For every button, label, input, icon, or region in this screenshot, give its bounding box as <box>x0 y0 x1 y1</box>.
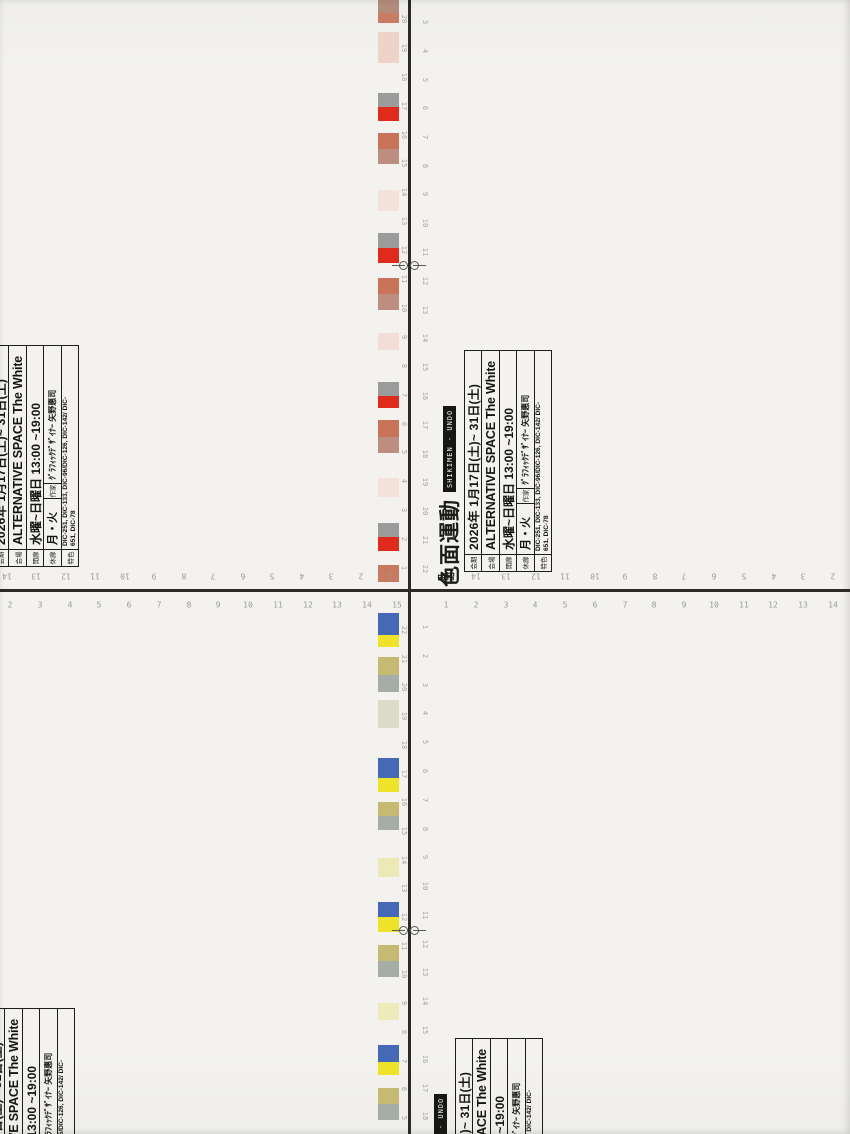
table-row-closed-artist: 休廊 月・火 作家 ｸﾞﾗﾌｨｯｸﾃﾞｻﾞｲﾅｰ 矢野惠司 <box>43 346 60 566</box>
ruler-number: 1 <box>444 601 449 610</box>
color-bar-number: 9 <box>400 1001 408 1005</box>
color-patch <box>378 675 399 692</box>
color-patch <box>378 802 399 816</box>
color-patch <box>378 700 399 728</box>
ruler-number: 9 <box>216 601 221 610</box>
ruler-number: 12 <box>421 277 429 285</box>
closed-value: 月・火 <box>517 504 533 554</box>
ruler-number: 2 <box>831 572 836 581</box>
ruler-number: 5 <box>97 601 102 610</box>
ruler-number: 9 <box>421 855 429 859</box>
color-patch <box>378 190 399 211</box>
artist-label: 作家 <box>44 483 60 499</box>
exhibition-info-table: 会期 2026年 1月17日(土)~ 31日(土) 会場 ALTERNATIVE… <box>0 345 79 567</box>
color-bar-number: 16 <box>400 798 408 806</box>
color-bar-number: 1 <box>400 566 408 570</box>
ruler-number: 4 <box>300 572 305 581</box>
ruler-number: 11 <box>739 601 749 610</box>
ruler-number: 4 <box>68 601 73 610</box>
ruler-number: 3 <box>421 683 429 687</box>
ruler-number: 1 <box>388 572 393 581</box>
table-row-venue: 会場 ALTERNATIVE SPACE The White <box>481 351 498 571</box>
exhibition-title: 色面運動 <box>434 499 464 587</box>
ruler-number: 2 <box>359 572 364 581</box>
ruler-number: 14 <box>828 601 838 610</box>
venue-value: ALTERNATIVE SPACE The White <box>484 361 498 554</box>
color-bar-number: 10 <box>400 304 408 312</box>
exhibition-titlebar: 色面運動 SHIKIMEN - UNDO <box>428 1038 452 1134</box>
ruler-number: 7 <box>421 135 429 139</box>
ruler-number: 11 <box>421 248 429 256</box>
artist-value: ｸﾞﾗﾌｨｯｸﾃﾞｻﾞｲﾅｰ 矢野惠司 <box>520 395 531 488</box>
venue-value: ALTERNATIVE SPACE The White <box>11 356 25 549</box>
table-row-closed-artist: 休廊 月・火 作家 ｸﾞﾗﾌｨｯｸﾃﾞｻﾞｲﾅｰ 矢野惠司 <box>39 1009 56 1134</box>
ruler-number: 6 <box>241 572 246 581</box>
table-row-closed-artist: 休廊 月・火 作家 ｸﾞﾗﾌｨｯｸﾃﾞｻﾞｲﾅｰ 矢野惠司 <box>516 351 533 571</box>
color-bar-number: 20 <box>400 15 408 23</box>
exhibition-info-block: 色面運動 SHIKIMEN - UNDO 会期 2026年 1月17日(土)~ … <box>0 345 80 582</box>
table-row-period: 会期 2026年 1月17日(土)~ 31日(土) <box>465 351 481 571</box>
color-patch <box>378 1088 399 1104</box>
ruler-number: 14 <box>421 997 429 1005</box>
color-bar-number: 12 <box>400 913 408 921</box>
ruler-number: 9 <box>682 601 687 610</box>
ruler-number: 18 <box>421 450 429 458</box>
hours-label: 開廊 <box>27 549 43 566</box>
color-patch <box>378 396 399 408</box>
ruler-number: 9 <box>623 572 628 581</box>
spot-colors-value: DIC-251, DIC-133, DIC-96/DIC-126, DIC-14… <box>535 396 551 554</box>
color-bar-number: 3 <box>400 508 408 512</box>
ruler-number: 14 <box>362 601 372 610</box>
table-row-hours: 開廊 水曜~日曜日 13:00 ~19:00 <box>22 1009 39 1134</box>
ruler-number: 3 <box>801 572 806 581</box>
ruler-number: 8 <box>421 164 429 168</box>
ruler-number: 8 <box>421 827 429 831</box>
ruler-number: 13 <box>421 968 429 976</box>
ruler-number: 6 <box>712 572 717 581</box>
venue-value: ALTERNATIVE SPACE The White <box>7 1019 21 1134</box>
ruler-number: 6 <box>127 601 132 610</box>
ruler-number: 10 <box>243 601 253 610</box>
table-row-venue: 会場 ALTERNATIVE SPACE The White <box>8 346 25 566</box>
ruler-number: 5 <box>421 740 429 744</box>
artist-value: ｸﾞﾗﾌｨｯｸﾃﾞｻﾞｲﾅｰ 矢野惠司 <box>47 390 58 483</box>
color-bar-number: 9 <box>400 335 408 339</box>
hours-value: 水曜~日曜日 13:00 ~19:00 <box>491 1096 508 1134</box>
ruler-number: 15 <box>392 601 402 610</box>
color-bar-number: 10 <box>400 970 408 978</box>
color-patch <box>378 1045 399 1062</box>
color-patch <box>378 758 399 778</box>
period-value: 2026年 1月17日(土)~ 31日(土) <box>456 1072 473 1134</box>
color-bar-number: 8 <box>400 1030 408 1034</box>
color-bar-number: 5 <box>400 450 408 454</box>
exhibition-info-block: 色面運動 SHIKIMEN - UNDO 会期 2026年 1月17日(土)~ … <box>0 1008 76 1134</box>
ruler-number: 11 <box>421 911 429 919</box>
ruler-number: 10 <box>120 572 130 581</box>
ruler-number: 13 <box>421 306 429 314</box>
ruler-number: 7 <box>157 601 162 610</box>
ruler-number: 13 <box>332 601 342 610</box>
color-bar-number: 22 <box>400 626 408 634</box>
ruler-number: 8 <box>652 601 657 610</box>
table-row-hours: 開廊 水曜~日曜日 13:00 ~19:00 <box>499 351 516 571</box>
registration-mark <box>392 260 426 270</box>
ruler-number: 1 <box>421 625 429 629</box>
exhibition-title-romaji-badge: SHIKIMEN - UNDO <box>443 406 456 492</box>
table-row-venue: 会場 ALTERNATIVE SPACE The White <box>4 1009 21 1134</box>
color-patch <box>378 478 399 497</box>
horizontal-fold-line <box>0 589 850 592</box>
color-bar-number: 20 <box>400 683 408 691</box>
color-patch <box>378 523 399 537</box>
color-patch <box>378 778 399 792</box>
color-bar-number: 18 <box>400 73 408 81</box>
color-bar-number: 5 <box>400 1116 408 1120</box>
ruler-number: 12 <box>421 940 429 948</box>
color-bar-number: 15 <box>400 159 408 167</box>
ruler-number: 6 <box>593 601 598 610</box>
color-bar-number: 17 <box>400 102 408 110</box>
ruler-number: 2 <box>8 601 13 610</box>
color-bar-number: 7 <box>400 1059 408 1063</box>
ruler-number: 20 <box>421 507 429 515</box>
color-bar-number: 7 <box>400 393 408 397</box>
color-patch <box>378 945 399 961</box>
color-bar-number: 13 <box>400 884 408 892</box>
color-bar-number: 19 <box>400 44 408 52</box>
table-row-closed-artist: 休廊 月・火 作家 ｸﾞﾗﾌｨｯｸﾃﾞｻﾞｲﾅｰ 矢野惠司 <box>507 1039 524 1134</box>
color-bar-number: 14 <box>400 188 408 196</box>
ruler-number: 15 <box>421 1026 429 1034</box>
color-patch <box>378 382 399 396</box>
ruler-number: 13 <box>798 601 808 610</box>
ruler-number: 10 <box>421 882 429 890</box>
exhibition-title-romaji-badge: SHIKIMEN - UNDO <box>434 1094 447 1134</box>
color-bar-number: 6 <box>400 1087 408 1091</box>
color-bar-number: 6 <box>400 422 408 426</box>
ruler-number: 5 <box>270 572 275 581</box>
ruler-number: 3 <box>421 20 429 24</box>
venue-value: ALTERNATIVE SPACE The White <box>475 1049 489 1134</box>
table-row-spot-colors: 特色 DIC-251, DIC-133, DIC-96/DIC-126, DIC… <box>61 346 78 566</box>
ruler-number: 2 <box>421 654 429 658</box>
color-patch <box>378 858 399 877</box>
ruler-number: 21 <box>421 536 429 544</box>
color-patch <box>378 1104 399 1120</box>
table-row-hours: 開廊 水曜~日曜日 13:00 ~19:00 <box>490 1039 507 1134</box>
closed-label: 休廊 <box>44 549 60 566</box>
table-row-spot-colors: 特色 DIC-251, DIC-133, DIC-96/DIC-126, DIC… <box>57 1009 74 1134</box>
ruler-number: 4 <box>421 49 429 53</box>
ruler-number: 14 <box>421 334 429 342</box>
color-patch <box>378 93 399 107</box>
color-patch <box>378 537 399 551</box>
color-patch <box>378 1003 399 1020</box>
color-patch <box>378 294 399 310</box>
closed-value: 月・火 <box>44 499 60 549</box>
table-row-period: 会期 2026年 1月17日(土)~ 31日(土) <box>456 1039 472 1134</box>
hours-value: 水曜~日曜日 13:00 ~19:00 <box>23 1066 40 1134</box>
color-patch <box>378 902 399 917</box>
color-patch <box>378 657 399 675</box>
color-bar-number: 2 <box>400 537 408 541</box>
color-patch <box>378 13 399 23</box>
ruler-number: 10 <box>709 601 719 610</box>
scanned-proof-sheet: 2019181716151413121110987654321222120191… <box>0 0 850 1134</box>
color-bar-number: 21 <box>400 655 408 663</box>
color-bar-number: 4 <box>400 479 408 483</box>
artist-label: 作家 <box>517 488 533 504</box>
ruler-number: 12 <box>768 601 778 610</box>
exhibition-info-block: 色面運動 SHIKIMEN - UNDO 会期 2026年 1月17日(土)~ … <box>437 350 553 587</box>
ruler-number: 4 <box>772 572 777 581</box>
ruler-number: 2 <box>474 601 479 610</box>
hours-value: 水曜~日曜日 13:00 ~19:00 <box>27 403 44 549</box>
table-row-venue: 会場 ALTERNATIVE SPACE The White <box>472 1039 489 1134</box>
artist-value: ｸﾞﾗﾌｨｯｸﾃﾞｻﾞｲﾅｰ 矢野惠司 <box>511 1083 522 1134</box>
ruler-number: 7 <box>682 572 687 581</box>
color-patch <box>378 816 399 830</box>
color-bar-number: 12 <box>400 246 408 254</box>
exhibition-titlebar: 色面運動 SHIKIMEN - UNDO <box>437 350 461 587</box>
ruler-number: 7 <box>211 572 216 581</box>
spot-colors-value: DIC-251, DIC-133, DIC-96/DIC-126, DIC-14… <box>526 1084 542 1134</box>
table-row-spot-colors: 特色 DIC-251, DIC-133, DIC-96/DIC-126, DIC… <box>525 1039 542 1134</box>
color-bar-number: 11 <box>400 275 408 283</box>
ruler-number: 3 <box>38 601 43 610</box>
ruler-number: 5 <box>742 572 747 581</box>
spot-colors-label: 特色 <box>535 554 551 571</box>
color-patch <box>378 1062 399 1075</box>
color-bar-number: 18 <box>400 741 408 749</box>
color-bar-number: 15 <box>400 827 408 835</box>
exhibition-info-table: 会期 2026年 1月17日(土)~ 31日(土) 会場 ALTERNATIVE… <box>455 1038 543 1134</box>
hours-label: 開廊 <box>500 554 516 571</box>
ruler-number: 9 <box>421 192 429 196</box>
color-patch <box>378 32 399 63</box>
table-row-spot-colors: 特色 DIC-251, DIC-133, DIC-96/DIC-126, DIC… <box>534 351 551 571</box>
exhibition-info-table: 会期 2026年 1月17日(土)~ 31日(土) 会場 ALTERNATIVE… <box>464 350 552 572</box>
artist-value: ｸﾞﾗﾌｨｯｸﾃﾞｻﾞｲﾅｰ 矢野惠司 <box>43 1053 54 1134</box>
ruler-number: 10 <box>590 572 600 581</box>
spot-colors-label: 特色 <box>62 549 78 566</box>
color-patch <box>378 278 399 294</box>
ruler-number: 7 <box>421 798 429 802</box>
ruler-number: 17 <box>421 421 429 429</box>
ruler-number: 8 <box>182 572 187 581</box>
ruler-number: 3 <box>504 601 509 610</box>
registration-mark <box>392 925 426 935</box>
ruler-number: 6 <box>421 769 429 773</box>
color-patch <box>378 149 399 164</box>
venue-label: 会場 <box>482 554 498 571</box>
ruler-number: 4 <box>421 711 429 715</box>
color-patch <box>378 333 399 350</box>
ruler-number: 9 <box>152 572 157 581</box>
color-bar-number: 13 <box>400 217 408 225</box>
color-patch <box>378 613 399 635</box>
ruler-number: 10 <box>421 219 429 227</box>
color-bar-number: 8 <box>400 364 408 368</box>
vertical-fold-line <box>408 0 411 1134</box>
ruler-number: 11 <box>90 572 100 581</box>
venue-label: 会場 <box>9 549 25 566</box>
ruler-number: 8 <box>187 601 192 610</box>
color-patch <box>378 437 399 453</box>
ruler-number: 5 <box>421 78 429 82</box>
table-row-hours: 開廊 水曜~日曜日 13:00 ~19:00 <box>26 346 43 566</box>
ruler-number: 5 <box>563 601 568 610</box>
table-row-period: 会期 2026年 1月17日(土)~ 31日(土) <box>0 346 8 566</box>
period-value: 2026年 1月17日(土)~ 31日(土) <box>0 379 9 549</box>
ruler-number: 22 <box>421 565 429 573</box>
ruler-number: 11 <box>273 601 283 610</box>
ruler-number: 11 <box>560 572 570 581</box>
period-label: 会期 <box>0 549 8 566</box>
ruler-number: 19 <box>421 478 429 486</box>
period-value: 2026年 1月17日(土)~ 31日(土) <box>465 384 482 554</box>
ruler-number: 12 <box>303 601 313 610</box>
hours-value: 水曜~日曜日 13:00 ~19:00 <box>500 408 517 554</box>
color-patch <box>378 233 399 248</box>
color-bar-number: 16 <box>400 131 408 139</box>
period-label: 会期 <box>465 554 481 571</box>
color-bar-number: 17 <box>400 770 408 778</box>
color-patch <box>378 107 399 121</box>
exhibition-info-table: 会期 2026年 1月17日(土)~ 31日(土) 会場 ALTERNATIVE… <box>0 1008 75 1134</box>
ruler-number: 8 <box>653 572 658 581</box>
ruler-number: 4 <box>533 601 538 610</box>
color-patch <box>378 133 399 149</box>
ruler-number: 6 <box>421 106 429 110</box>
ruler-number: 16 <box>421 392 429 400</box>
color-patch <box>378 420 399 437</box>
ruler-number: 15 <box>421 363 429 371</box>
color-patch <box>378 635 399 647</box>
ruler-number: 7 <box>623 601 628 610</box>
exhibition-info-block: 色面運動 SHIKIMEN - UNDO 会期 2026年 1月17日(土)~ … <box>428 1038 544 1134</box>
color-patch <box>378 0 399 13</box>
color-patch <box>378 961 399 977</box>
spot-colors-value: DIC-251, DIC-133, DIC-96/DIC-126, DIC-14… <box>62 391 78 549</box>
color-bar-number: 11 <box>400 942 408 950</box>
color-bar-number: 14 <box>400 856 408 864</box>
closed-label: 休廊 <box>517 554 533 571</box>
spot-colors-value: DIC-251, DIC-133, DIC-96/DIC-126, DIC-14… <box>58 1054 74 1134</box>
color-bar-number: 19 <box>400 712 408 720</box>
ruler-number: 3 <box>329 572 334 581</box>
